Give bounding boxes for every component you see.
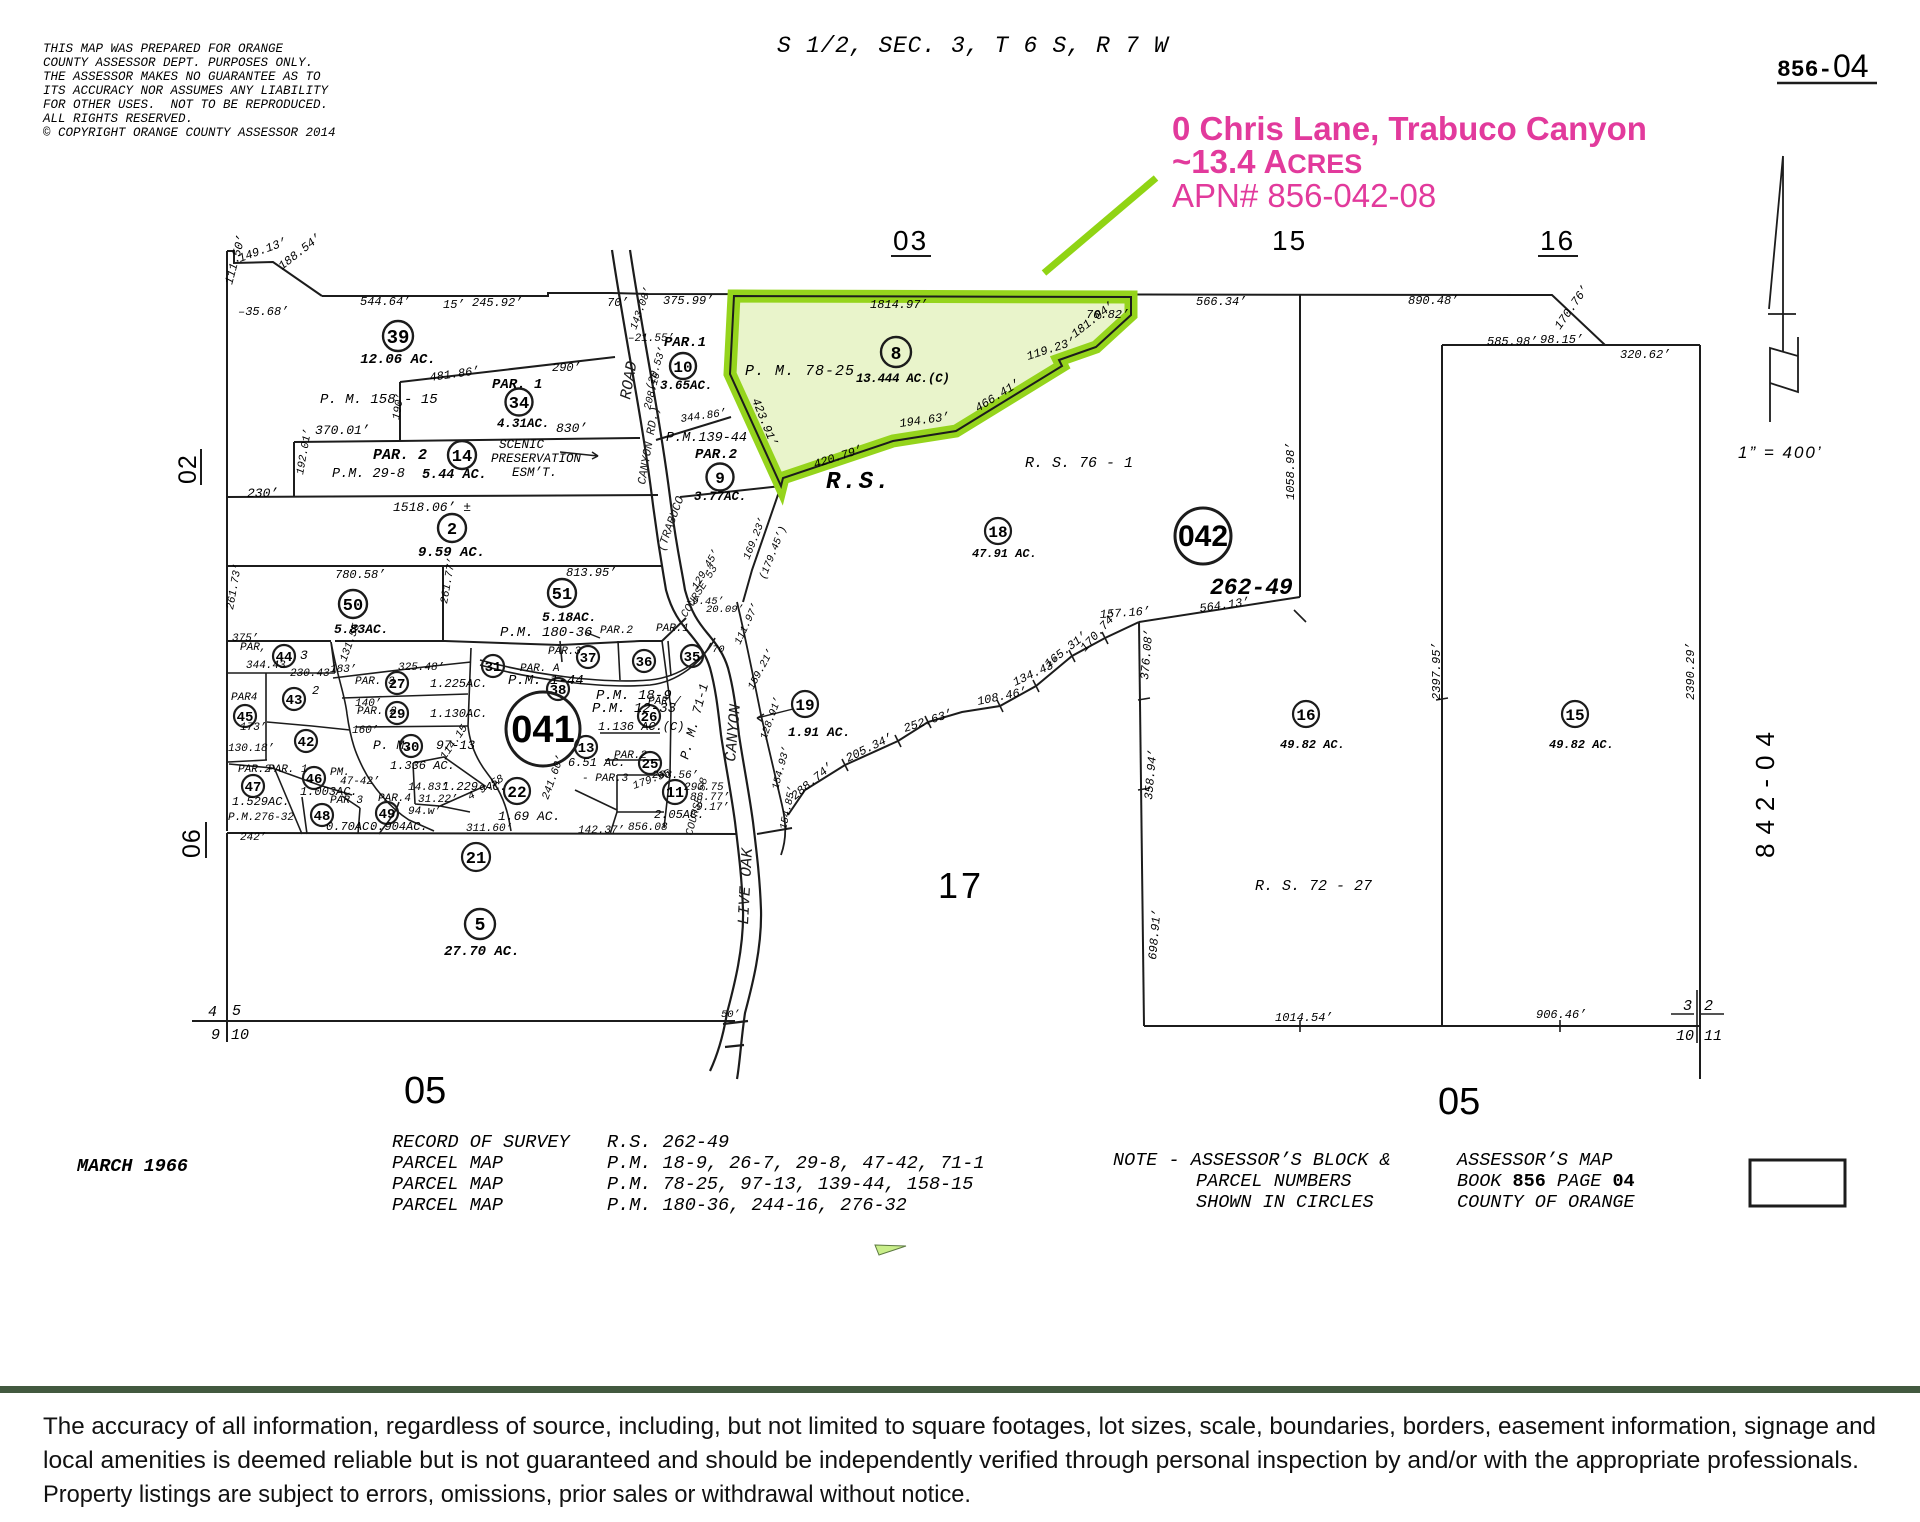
svg-text:370.01’: 370.01’ [315, 423, 370, 438]
svg-text:0 Chris Lane, Trabuco Canyon: 0 Chris Lane, Trabuco Canyon [1172, 110, 1647, 147]
svg-text:R.S.: R.S. [826, 469, 892, 496]
svg-text:70’: 70’ [607, 296, 629, 310]
svg-text:325.48’: 325.48’ [398, 662, 444, 674]
svg-text:27.70 AC.: 27.70 AC. [444, 944, 520, 960]
svg-text:THIS MAP WAS PREPARED FOR ORAN: THIS MAP WAS PREPARED FOR ORANGE [43, 42, 284, 56]
svg-text:3.65AC.: 3.65AC. [660, 379, 713, 393]
svg-text:R. S. 76 - 1: R. S. 76 - 1 [1025, 455, 1133, 472]
svg-text:PAR 3: PAR 3 [330, 795, 363, 807]
svg-text:RECORD OF SURVEY: RECORD OF SURVEY [392, 1132, 572, 1153]
svg-text:142.37’: 142.37’ [578, 825, 624, 837]
svg-text:The accuracy of all informatio: The accuracy of all information, regardl… [43, 1413, 1876, 1440]
svg-text:344.43: 344.43 [246, 660, 286, 672]
svg-text:50: 50 [343, 597, 363, 616]
svg-text:- PAR.3: - PAR.3 [582, 773, 629, 785]
svg-text:2: 2 [447, 521, 457, 540]
svg-text:1814.97’: 1814.97’ [870, 298, 928, 312]
svg-text:FOR OTHER USES. NOT TO BE REP: FOR OTHER USES. NOT TO BE REPRODUCED. [43, 98, 328, 112]
svg-text:1” = 400’: 1” = 400’ [1738, 443, 1823, 462]
svg-text:COUNTY OF ORANGE: COUNTY OF ORANGE [1457, 1192, 1636, 1213]
svg-text:140’: 140’ [355, 698, 381, 710]
svg-text:ITS ACCURACY NOR ASSUMES ANY L: ITS ACCURACY NOR ASSUMES ANY LIABILITY [43, 84, 330, 98]
svg-text:585.98’: 585.98’ [1487, 335, 1537, 349]
svg-text:3: 3 [1683, 998, 1692, 1015]
svg-text:P.M.276-32: P.M.276-32 [228, 812, 294, 824]
svg-text:3.77AC.: 3.77AC. [694, 490, 747, 504]
svg-text:PARCEL MAP: PARCEL MAP [392, 1153, 503, 1174]
svg-text:1.130AC.: 1.130AC. [430, 707, 488, 721]
svg-text:5: 5 [232, 1003, 241, 1020]
svg-text:98.15’: 98.15’ [1540, 333, 1583, 347]
svg-text:ESM’T.: ESM’T. [512, 466, 557, 480]
svg-text:1.91 AC.: 1.91 AC. [788, 725, 850, 740]
svg-text:35: 35 [684, 650, 701, 666]
svg-text:Property listings are subject: Property listings are subject to errors,… [43, 1481, 971, 1508]
svg-text:50’: 50’ [721, 1009, 740, 1021]
svg-text:183’: 183’ [330, 664, 356, 676]
svg-text:130.18’: 130.18’ [228, 743, 274, 755]
svg-text:842-04: 842-04 [1750, 723, 1780, 858]
svg-text:245.92’: 245.92’ [472, 296, 522, 310]
svg-text:5.18AC.: 5.18AC. [542, 610, 597, 625]
svg-text:47: 47 [245, 780, 262, 796]
svg-text:03: 03 [893, 225, 928, 256]
svg-text:906.46’: 906.46’ [1536, 1008, 1586, 1022]
svg-text:APN# 856-042-08: APN# 856-042-08 [1172, 177, 1436, 214]
svg-text:262-49: 262-49 [1210, 575, 1293, 601]
svg-text:15’: 15’ [443, 298, 465, 312]
svg-text:042: 042 [1178, 520, 1228, 553]
svg-text:10: 10 [1676, 1028, 1694, 1045]
svg-text:49.82 AC.: 49.82 AC. [1280, 738, 1345, 752]
svg-text:2397.95’: 2397.95’ [1430, 642, 1444, 700]
svg-text:1.69 AC.: 1.69 AC. [498, 809, 560, 824]
svg-text:2390.29’: 2390.29’ [1684, 642, 1698, 700]
svg-text:–35.68’: –35.68’ [238, 305, 288, 319]
svg-text:PAR. 1: PAR. 1 [268, 764, 308, 776]
svg-text:10: 10 [673, 359, 692, 377]
svg-text:0.70AC.: 0.70AC. [326, 820, 376, 834]
svg-text:70: 70 [712, 644, 725, 656]
svg-text:20.09’: 20.09’ [706, 604, 744, 616]
svg-text:COUNTY ASSESSOR DEPT. PURPOSES: COUNTY ASSESSOR DEPT. PURPOSES ONLY. [43, 56, 313, 70]
svg-text:11: 11 [1704, 1028, 1722, 1045]
svg-text:49.82 AC.: 49.82 AC. [1549, 738, 1614, 752]
svg-text:PAR. A: PAR. A [520, 663, 560, 675]
svg-text:17: 17 [938, 865, 984, 906]
svg-text:31: 31 [485, 660, 502, 676]
svg-text:PAR.3: PAR.3 [548, 646, 581, 658]
svg-text:PAR. 1: PAR. 1 [492, 377, 542, 393]
svg-text:42: 42 [298, 735, 315, 751]
svg-text:2: 2 [312, 684, 319, 698]
svg-text:05: 05 [1438, 1081, 1480, 1123]
svg-text:1.529AC.: 1.529AC. [232, 795, 290, 809]
svg-text:566.34’: 566.34’ [1196, 295, 1246, 309]
svg-text:12.06 AC.: 12.06 AC. [360, 352, 436, 368]
svg-text:19: 19 [795, 697, 814, 715]
svg-text:1518.06’ ±: 1518.06’ ± [393, 500, 471, 515]
svg-text:06: 06 [178, 828, 206, 858]
svg-text:1014.54’: 1014.54’ [1275, 1011, 1333, 1025]
svg-text:P. M.: P. M. [373, 738, 412, 753]
svg-text:34: 34 [509, 395, 529, 414]
svg-text:51: 51 [552, 586, 572, 605]
svg-text:P.M. 18-9, 26-7, 29-8, 47-42,: P.M. 18-9, 26-7, 29-8, 47-42, 71-1 [607, 1153, 984, 1174]
svg-text:230’: 230’ [247, 486, 278, 501]
svg-text:THE ASSESSOR MAKES NO GUARANTE: THE ASSESSOR MAKES NO GUARANTEE AS TO [43, 70, 321, 84]
svg-text:041: 041 [511, 709, 574, 751]
svg-text:PAR.2: PAR.2 [238, 764, 271, 776]
svg-text:1.136 AC.(C): 1.136 AC.(C) [598, 720, 684, 734]
svg-text:–21.55’: –21.55’ [628, 333, 674, 345]
svg-text:PAR.2: PAR.2 [695, 447, 738, 463]
svg-text:31.22’: 31.22’ [418, 794, 458, 806]
svg-text:13: 13 [578, 741, 595, 757]
svg-text:R. S. 72 - 27: R. S. 72 - 27 [1255, 878, 1372, 895]
svg-text:S 1/2, SEC. 3, T 6 S, R 7 W: S 1/2, SEC. 3, T 6 S, R 7 W [777, 33, 1170, 59]
svg-text:11: 11 [666, 785, 684, 802]
svg-text:173’: 173’ [240, 722, 266, 734]
svg-text:ALL RIGHTS RESERVED.: ALL RIGHTS RESERVED. [42, 112, 193, 126]
svg-text:9: 9 [715, 470, 725, 488]
svg-text:375’: 375’ [232, 633, 258, 645]
svg-text:36: 36 [636, 655, 653, 671]
svg-text:R.S. 262-49: R.S. 262-49 [607, 1132, 729, 1153]
svg-text:375.99’: 375.99’ [663, 294, 713, 308]
svg-text:2: 2 [1704, 998, 1713, 1015]
svg-text:local amenities is deemed reli: local amenities is deemed reliable but i… [43, 1447, 1859, 1474]
svg-text:8: 8 [891, 345, 902, 365]
svg-text:22: 22 [507, 784, 526, 802]
svg-text:© COPYRIGHT ORANGE COUNTY ASSE: © COPYRIGHT ORANGE COUNTY ASSESSOR 2014 [43, 126, 336, 140]
svg-text:0.904AC.: 0.904AC. [370, 820, 428, 834]
svg-text:18: 18 [988, 524, 1007, 542]
svg-text:P.M.139-44: P.M.139-44 [666, 431, 747, 446]
svg-text:37: 37 [580, 651, 597, 667]
svg-text:10: 10 [231, 1027, 249, 1044]
svg-text:4: 4 [208, 1004, 217, 1021]
svg-text:PAR4: PAR4 [231, 692, 257, 704]
svg-text:PAR.2: PAR.2 [614, 750, 647, 762]
svg-text:39: 39 [387, 327, 410, 349]
svg-text:242’: 242’ [240, 832, 266, 844]
svg-text:P.M. 78-25, 97-13, 139-44, 158: P.M. 78-25, 97-13, 139-44, 158-15 [607, 1174, 973, 1195]
svg-text:PARCEL MAP: PARCEL MAP [392, 1174, 503, 1195]
svg-text:BOOK 856 PAGE 04: BOOK 856 PAGE 04 [1457, 1171, 1635, 1192]
svg-text:P.M. 180-36, 244-16, 276-32: P.M. 180-36, 244-16, 276-32 [607, 1195, 907, 1216]
svg-text:94.w’: 94.w’ [408, 806, 441, 818]
svg-text:NOTE - ASSESSOR’S BLOCK &: NOTE - ASSESSOR’S BLOCK & [1113, 1150, 1391, 1171]
svg-text:311.60’: 311.60’ [466, 823, 512, 835]
svg-text:1.225AC.: 1.225AC. [430, 677, 488, 691]
svg-text:PAR.4: PAR.4 [378, 793, 411, 805]
svg-text:3: 3 [300, 648, 308, 663]
svg-text:14.83’: 14.83’ [408, 782, 448, 794]
svg-text:P. M. 78-25: P. M. 78-25 [745, 363, 855, 380]
svg-text:47.91 AC.: 47.91 AC. [972, 547, 1037, 561]
svg-text:05: 05 [404, 1070, 446, 1112]
svg-text:PRESERVATION: PRESERVATION [491, 452, 582, 466]
svg-text:02: 02 [174, 454, 202, 484]
svg-text:15: 15 [1565, 707, 1584, 725]
svg-text:PAR.2: PAR.2 [600, 625, 633, 637]
svg-text:856-: 856- [1777, 57, 1832, 83]
svg-text:160’: 160’ [352, 725, 378, 737]
svg-text:5: 5 [475, 916, 486, 936]
svg-text:830’: 830’ [556, 421, 587, 436]
svg-text:890.48’: 890.48’ [1408, 294, 1458, 308]
svg-text:P.M. 180-36: P.M. 180-36 [500, 625, 592, 641]
svg-text:PAR./: PAR./ [648, 696, 681, 708]
svg-text:21: 21 [466, 850, 486, 869]
svg-text:544.64’: 544.64’ [360, 295, 410, 309]
svg-text:283.56’: 283.56’ [652, 770, 698, 782]
svg-text:16: 16 [1540, 225, 1575, 256]
svg-text:290’: 290’ [552, 361, 581, 375]
svg-text:PAR.1: PAR.1 [656, 623, 689, 635]
svg-text:16: 16 [1296, 707, 1315, 725]
svg-text:SCENIC: SCENIC [499, 438, 545, 452]
svg-text:P.M. 29-8: P.M. 29-8 [332, 467, 405, 482]
svg-text:780.58’: 780.58’ [335, 568, 385, 582]
svg-text:5.44 AC.: 5.44 AC. [422, 468, 487, 483]
svg-text:13.444 AC.(C): 13.444 AC.(C) [856, 372, 950, 386]
svg-text:PARCEL NUMBERS: PARCEL NUMBERS [1196, 1171, 1351, 1192]
svg-text:SHOWN IN CIRCLES: SHOWN IN CIRCLES [1196, 1192, 1374, 1213]
svg-text:2.05AC.: 2.05AC. [654, 808, 704, 822]
svg-text:856.08: 856.08 [628, 822, 668, 834]
svg-text:PAR. 3: PAR. 3 [355, 676, 395, 688]
svg-text:PAR. 2: PAR. 2 [373, 447, 427, 464]
svg-text:MARCH 1966: MARCH 1966 [76, 1156, 188, 1177]
svg-text:~13.4 ACRES: ~13.4 ACRES [1172, 143, 1362, 180]
svg-text:4.31AC.: 4.31AC. [497, 417, 550, 431]
svg-text:813.95’: 813.95’ [566, 566, 616, 580]
svg-text:P.M. 1-44: P.M. 1-44 [508, 673, 584, 689]
svg-text:320.62’: 320.62’ [1620, 348, 1670, 362]
svg-text:14: 14 [452, 448, 472, 467]
svg-text:P. M. 158 - 15: P. M. 158 - 15 [320, 392, 438, 408]
svg-text:04: 04 [1833, 48, 1869, 84]
svg-text:9: 9 [211, 1027, 220, 1044]
svg-text:15: 15 [1272, 225, 1307, 256]
svg-text:ASSESSOR’S MAP: ASSESSOR’S MAP [1456, 1150, 1612, 1171]
svg-text:43: 43 [286, 693, 303, 709]
svg-text:PARCEL MAP: PARCEL MAP [392, 1195, 503, 1216]
svg-text:1058.98’: 1058.98’ [1284, 442, 1298, 500]
